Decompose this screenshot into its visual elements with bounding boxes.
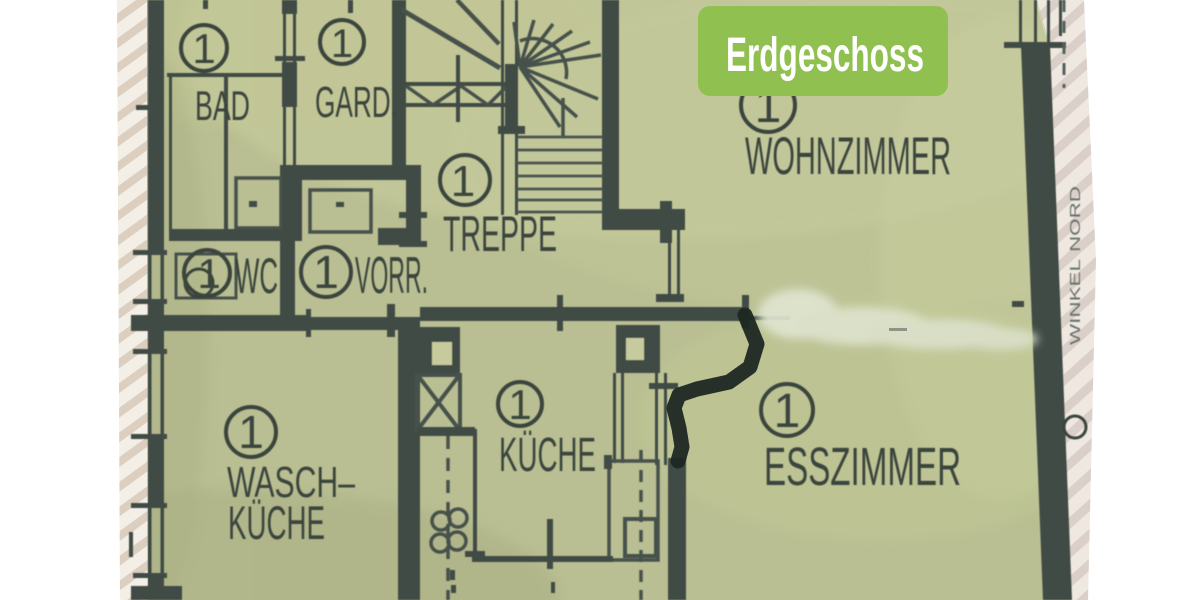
svg-text:KÜCHE: KÜCHE xyxy=(499,429,596,482)
svg-text:Erdgeschoss: Erdgeschoss xyxy=(726,29,924,82)
svg-text:1: 1 xyxy=(313,246,339,298)
svg-text:1: 1 xyxy=(238,406,264,458)
svg-text:1: 1 xyxy=(331,22,353,66)
svg-text:1: 1 xyxy=(774,385,801,438)
svg-text:WINKEL: WINKEL xyxy=(1067,259,1084,345)
svg-text:WOHNZIMMER: WOHNZIMMER xyxy=(745,127,951,186)
svg-text:GARD.: GARD. xyxy=(315,78,398,127)
svg-text:1: 1 xyxy=(192,25,215,72)
svg-text:TREPPE: TREPPE xyxy=(443,206,557,262)
svg-text:1: 1 xyxy=(197,250,220,297)
svg-text:WC: WC xyxy=(235,248,278,304)
svg-text:VORR.: VORR. xyxy=(355,247,428,305)
svg-text:BAD: BAD xyxy=(195,82,250,129)
svg-text:1: 1 xyxy=(508,381,531,428)
svg-text:ESSZIMMER: ESSZIMMER xyxy=(764,437,961,497)
svg-text:1: 1 xyxy=(451,157,475,206)
svg-text:KÜCHE: KÜCHE xyxy=(228,496,325,549)
svg-text:NORD: NORD xyxy=(1067,186,1084,252)
